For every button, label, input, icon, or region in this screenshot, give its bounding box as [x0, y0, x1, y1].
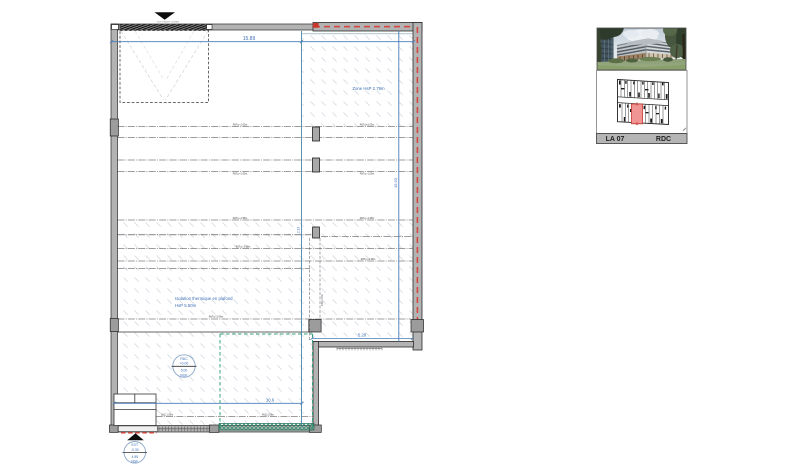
svg-text:RdTq +1.05m: RdTq +1.05m [233, 172, 248, 175]
svg-text:10.6: 10.6 [266, 398, 275, 403]
svg-text:PdQ 2.08m: PdQ 2.08m [262, 413, 274, 416]
svg-text:RdTq +1.98m: RdTq +1.98m [233, 217, 248, 220]
svg-text:Zone HsP 2.79m: Zone HsP 2.79m [352, 86, 385, 91]
svg-text:LA 07: LA 07 [606, 136, 625, 143]
svg-text:HsP 5.50m: HsP 5.50m [175, 303, 197, 308]
svg-text:RdTq +1.98m: RdTq +1.98m [361, 258, 376, 261]
svg-text:+0.00: +0.00 [180, 362, 189, 366]
svg-text:5.00: 5.00 [181, 369, 188, 373]
svg-text:RDC: RDC [656, 136, 671, 143]
svg-text:PdQ 1.05m: PdQ 1.05m [322, 294, 324, 306]
svg-text:RdTq +1.98m: RdTq +1.98m [360, 217, 375, 220]
svg-text:RdTq +1.05m: RdTq +1.05m [233, 123, 248, 126]
svg-text:RDC: RDC [180, 357, 188, 361]
svg-text:15.89: 15.89 [243, 36, 256, 42]
svg-text:NGF: NGF [180, 373, 187, 377]
svg-text:RdTq +1.05m: RdTq +1.05m [360, 172, 375, 175]
svg-text:NGF: NGF [131, 460, 138, 464]
svg-text:RdTq +1.98m: RdTq +1.98m [236, 245, 251, 248]
svg-text:EXT: EXT [131, 443, 138, 447]
svg-text:RdTq +1.05m: RdTq +1.05m [360, 123, 375, 126]
svg-text:DdQ 1.05m: DdQ 1.05m [161, 413, 173, 416]
svg-text:RdTq +2.08m: RdTq +2.08m [209, 316, 224, 319]
svg-text:15.93: 15.93 [393, 177, 398, 188]
svg-text:4.95: 4.95 [131, 455, 138, 459]
svg-text:2.13: 2.13 [297, 227, 301, 233]
svg-text:mur mitoyen existant: mur mitoyen existant [157, 21, 179, 24]
svg-text:-0.30: -0.30 [131, 448, 139, 452]
svg-text:5.28: 5.28 [358, 332, 367, 337]
svg-text:Isolation thermique en plafond: Isolation thermique en plafond [175, 296, 233, 301]
